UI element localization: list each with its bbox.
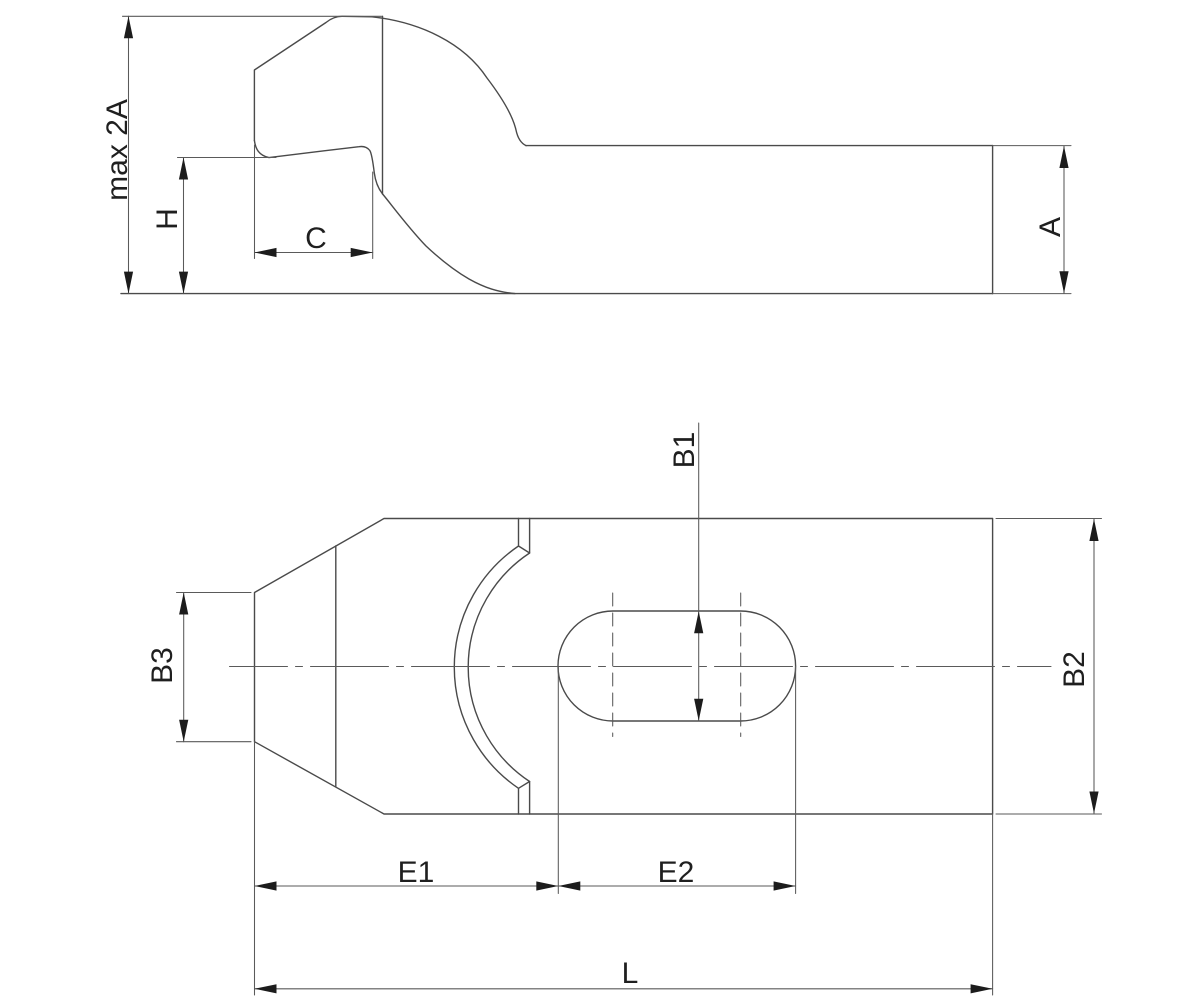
svg-text:A: A — [1034, 217, 1067, 237]
svg-text:E1: E1 — [398, 856, 435, 889]
svg-text:L: L — [622, 957, 639, 990]
svg-text:E2: E2 — [658, 856, 695, 889]
svg-text:H: H — [151, 208, 184, 230]
svg-text:B1: B1 — [668, 432, 701, 469]
svg-text:max 2A: max 2A — [101, 99, 134, 201]
svg-text:C: C — [305, 222, 327, 255]
svg-text:B2: B2 — [1058, 651, 1091, 688]
svg-text:B3: B3 — [146, 647, 179, 684]
